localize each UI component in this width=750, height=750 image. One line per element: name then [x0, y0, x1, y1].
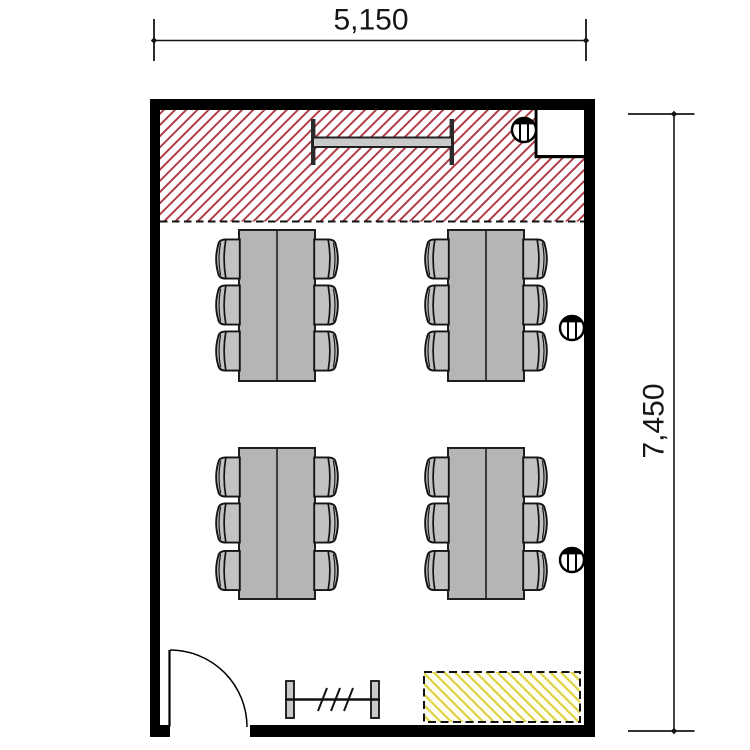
svg-text:7,450: 7,450	[638, 383, 671, 458]
svg-text:5,150: 5,150	[333, 4, 408, 37]
